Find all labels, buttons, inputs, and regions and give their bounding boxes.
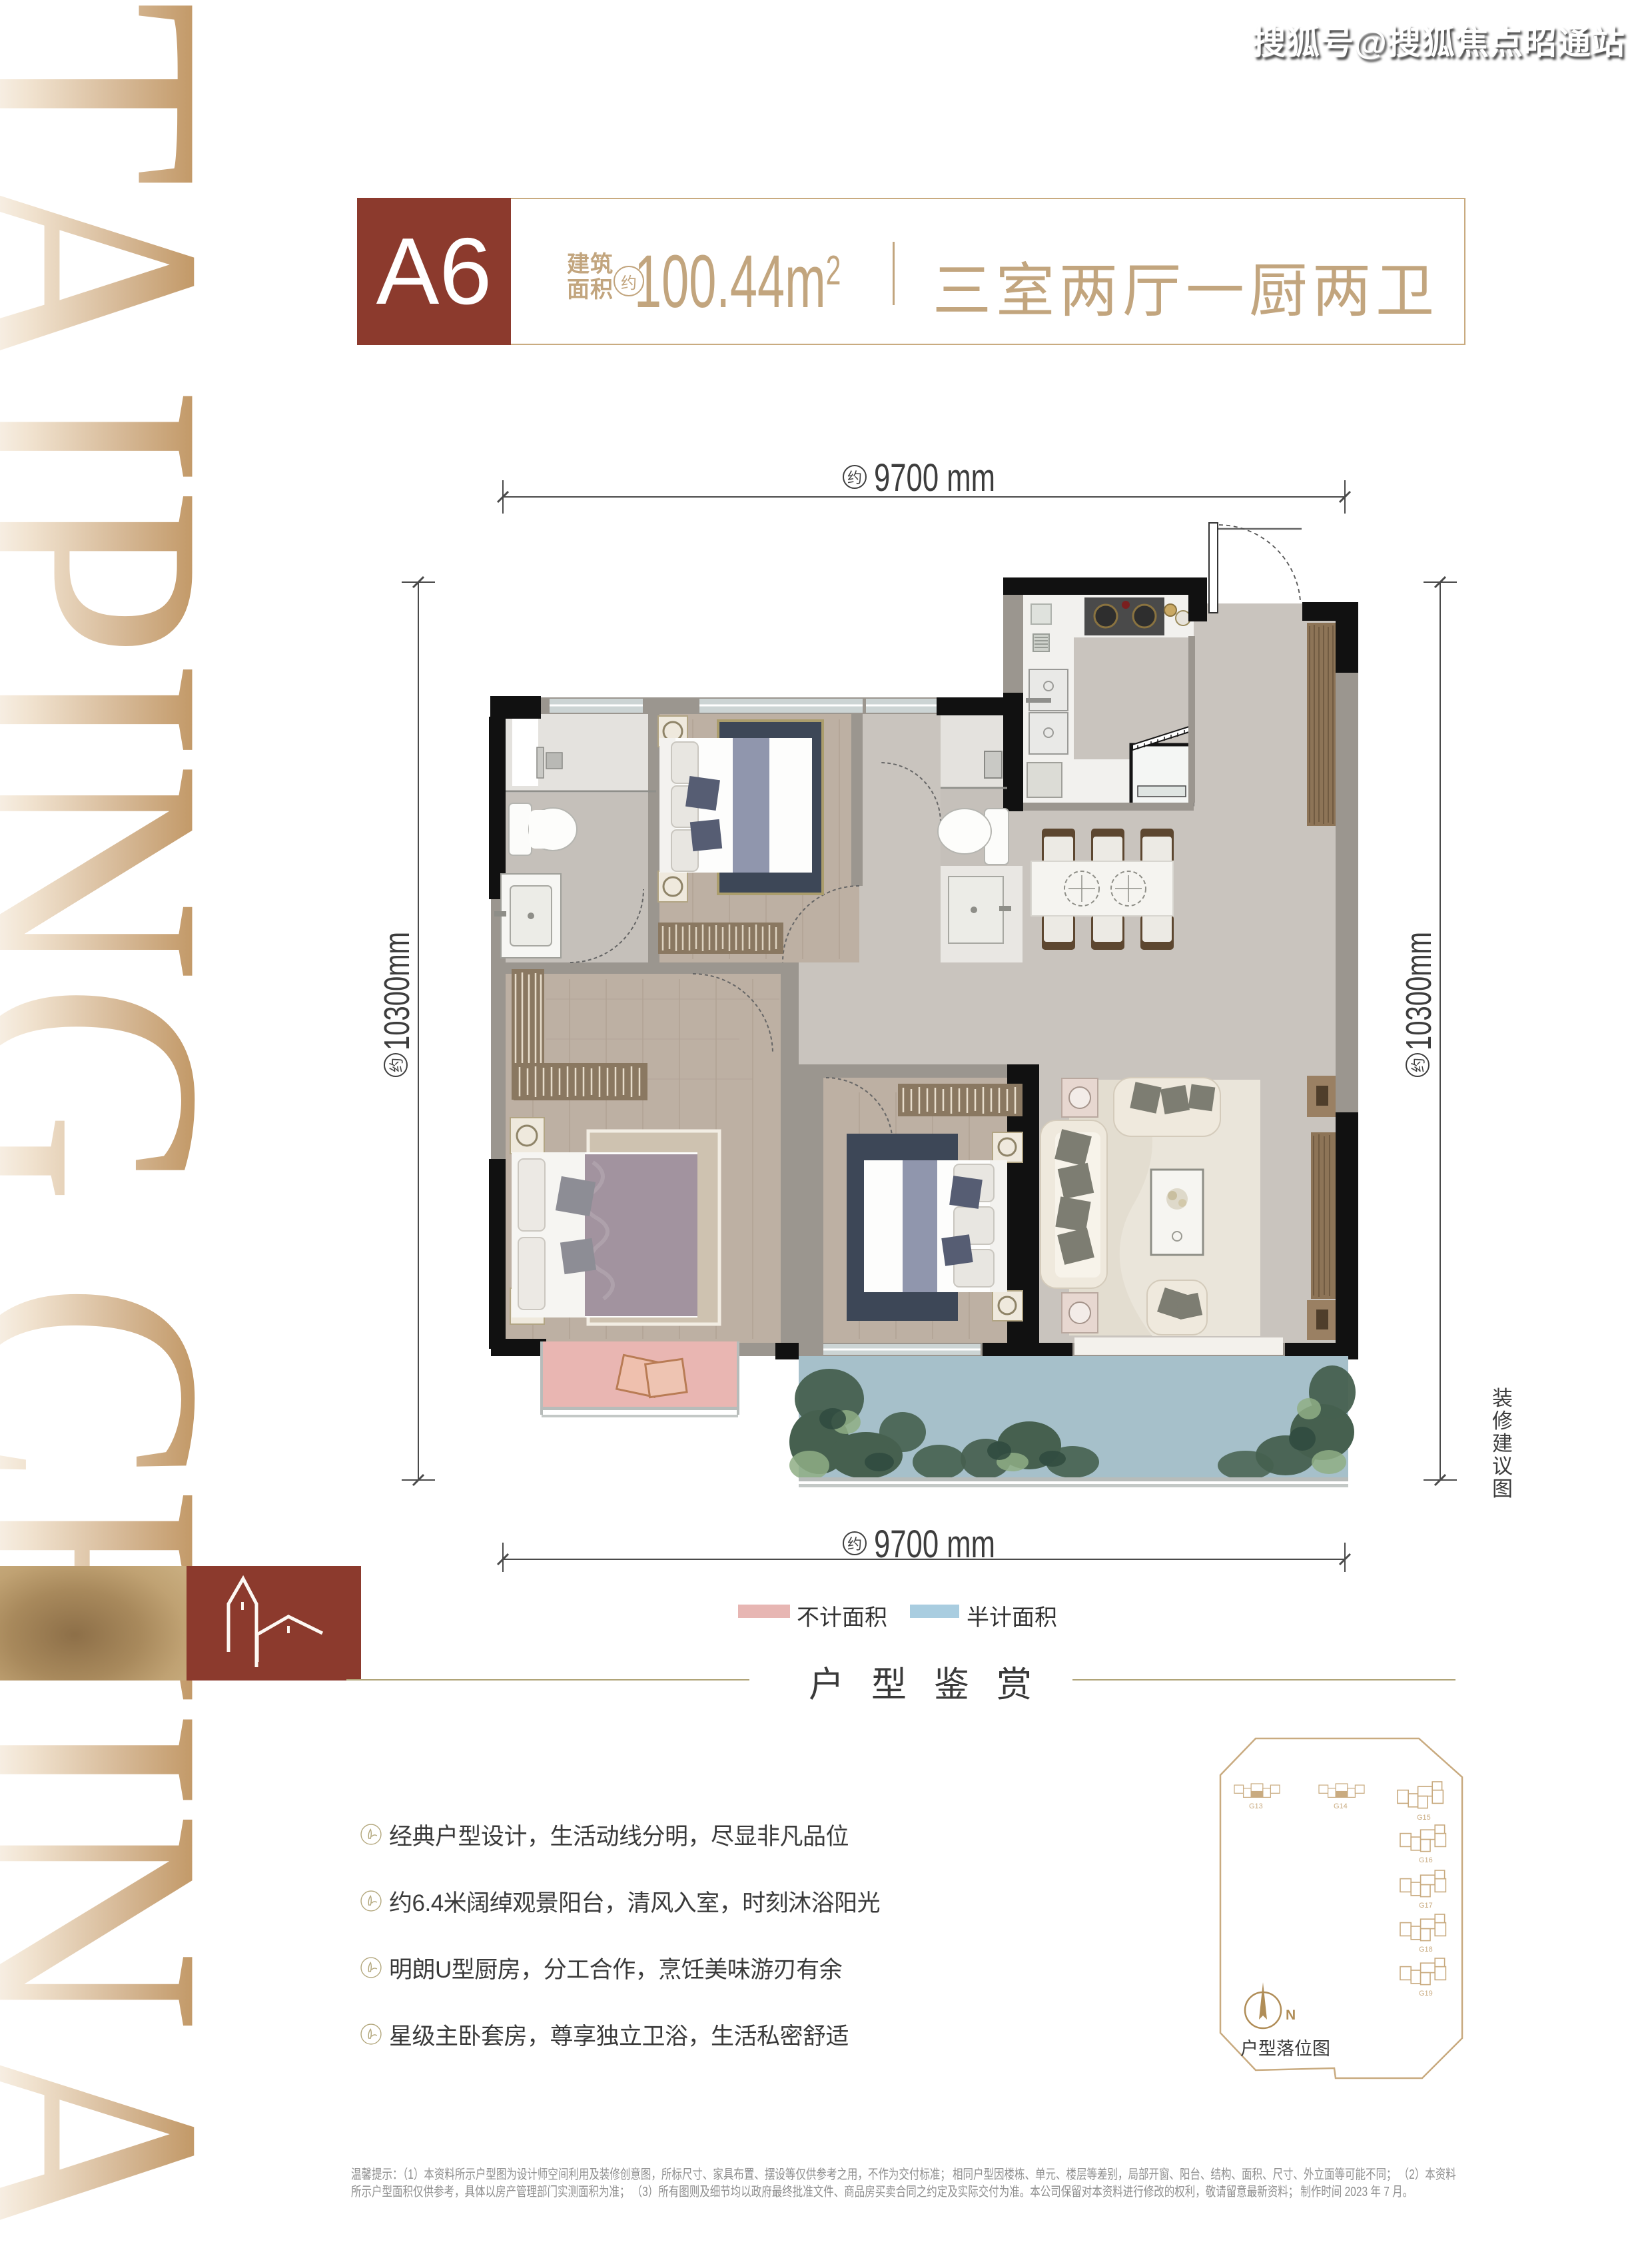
svg-text:约: 约 xyxy=(847,470,862,486)
svg-text:约: 约 xyxy=(847,1536,862,1553)
svg-text:装: 装 xyxy=(1492,1387,1513,1410)
svg-text:9700 mm: 9700 mm xyxy=(874,456,995,500)
svg-text:户型落位图: 户型落位图 xyxy=(1240,2039,1330,2059)
svg-text:N: N xyxy=(1286,2008,1296,2023)
svg-text:10300mm: 10300mm xyxy=(1399,932,1439,1050)
svg-text:约: 约 xyxy=(1410,1058,1427,1072)
svg-text:G16: G16 xyxy=(1419,1856,1433,1864)
svg-text:图: 图 xyxy=(1492,1477,1513,1501)
svg-text:G18: G18 xyxy=(1419,1946,1433,1954)
svg-text:议: 议 xyxy=(1492,1455,1513,1478)
svg-text:10300mm: 10300mm xyxy=(377,932,417,1050)
svg-text:修: 修 xyxy=(1492,1409,1513,1433)
svg-text:G14: G14 xyxy=(1334,1802,1348,1810)
svg-text:TAIPING CHINA: TAIPING CHINA xyxy=(0,0,273,2242)
svg-text:约: 约 xyxy=(388,1058,405,1072)
svg-text:G15: G15 xyxy=(1417,1814,1431,1822)
svg-text:建: 建 xyxy=(1492,1432,1513,1455)
svg-text:G19: G19 xyxy=(1419,1990,1433,1998)
svg-text:G17: G17 xyxy=(1419,1902,1433,1910)
svg-text:9700 mm: 9700 mm xyxy=(874,1523,995,1566)
svg-text:G13: G13 xyxy=(1249,1802,1263,1810)
